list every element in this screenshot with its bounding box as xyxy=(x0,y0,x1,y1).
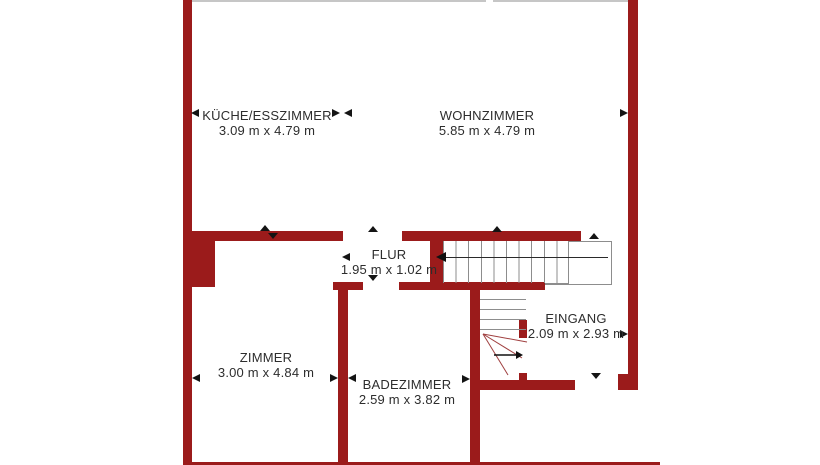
wall-marker-icon xyxy=(462,375,470,383)
entry-door-marker-icon xyxy=(591,373,601,379)
wall-marker-icon xyxy=(330,374,338,382)
wall-mid-a xyxy=(183,231,343,241)
window-marker-icon xyxy=(589,233,599,239)
opening-marker-icon xyxy=(492,226,502,232)
window-marker-icon xyxy=(620,109,628,117)
floor-plan: KÜCHE/ESSZIMMER 3.09 m x 4.79 m WOHNZIMM… xyxy=(0,0,820,465)
room-dims: 2.59 m x 3.82 m xyxy=(359,392,455,407)
room-label-wohnzimmer: WOHNZIMMER 5.85 m x 4.79 m xyxy=(439,108,535,138)
room-name: FLUR xyxy=(341,247,437,262)
room-name: WOHNZIMMER xyxy=(439,108,535,123)
room-dims: 3.00 m x 4.84 m xyxy=(218,365,314,380)
top-window-gap xyxy=(486,0,493,2)
room-split-marker-icon xyxy=(344,109,352,117)
room-dims: 1.95 m x 1.02 m xyxy=(341,262,437,277)
door-marker-icon xyxy=(260,225,270,231)
room-label-zimmer: ZIMMER 3.00 m x 4.84 m xyxy=(218,350,314,380)
room-name: KÜCHE/ESSZIMMER xyxy=(202,108,331,123)
room-dims: 3.09 m x 4.79 m xyxy=(202,123,331,138)
room-label-badezimmer: BADEZIMMER 2.59 m x 3.82 m xyxy=(359,377,455,407)
wall-zimmer-bad-divider xyxy=(338,282,348,465)
wall-marker-icon xyxy=(348,374,356,382)
room-label-flur: FLUR 1.95 m x 1.02 m xyxy=(341,247,437,277)
room-name: EINGANG xyxy=(528,311,624,326)
room-name: BADEZIMMER xyxy=(359,377,455,392)
room-name: ZIMMER xyxy=(218,350,314,365)
room-label-kueche: KÜCHE/ESSZIMMER 3.09 m x 4.79 m xyxy=(202,108,331,138)
room-dims: 5.85 m x 4.79 m xyxy=(439,123,535,138)
opening-marker-icon xyxy=(368,226,378,232)
staircase-landing xyxy=(568,241,612,285)
room-split-marker-icon xyxy=(332,109,340,117)
door-marker-icon xyxy=(268,233,278,239)
staircase-direction-line xyxy=(446,257,608,258)
wall-mid-c xyxy=(443,231,581,241)
room-dims: 2.09 m x 2.93 m xyxy=(528,326,624,341)
wall-right-exterior xyxy=(628,0,638,390)
staircase-arrow-icon xyxy=(436,252,446,262)
top-window-line xyxy=(192,0,628,2)
window-marker-icon xyxy=(191,109,199,117)
staircase-upper-treads xyxy=(443,241,569,283)
window-marker-icon xyxy=(192,374,200,382)
wall-right-foot xyxy=(618,374,638,390)
room-label-eingang: EINGANG 2.09 m x 2.93 m xyxy=(528,311,624,341)
